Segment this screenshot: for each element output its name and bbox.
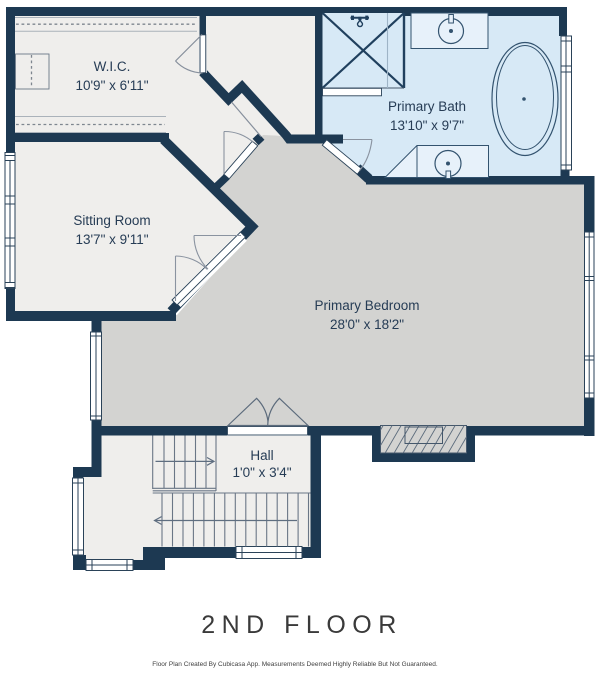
svg-text:28'0" x 18'2": 28'0" x 18'2"	[330, 317, 404, 332]
svg-text:1'0" x 3'4": 1'0" x 3'4"	[232, 465, 291, 480]
svg-text:Primary Bedroom: Primary Bedroom	[314, 298, 419, 313]
svg-text:Hall: Hall	[250, 448, 273, 463]
svg-text:Primary Bath: Primary Bath	[388, 99, 466, 114]
svg-text:Sitting Room: Sitting Room	[73, 213, 150, 228]
svg-text:2ND FLOOR: 2ND FLOOR	[201, 611, 403, 639]
svg-text:Floor Plan Created By Cubicasa: Floor Plan Created By Cubicasa App. Meas…	[152, 661, 438, 668]
svg-text:13'7" x 9'11": 13'7" x 9'11"	[75, 232, 148, 247]
svg-text:10'9" x 6'11": 10'9" x 6'11"	[75, 78, 148, 93]
svg-text:13'10" x 9'7": 13'10" x 9'7"	[390, 118, 464, 133]
svg-text:W.I.C.: W.I.C.	[94, 59, 131, 74]
